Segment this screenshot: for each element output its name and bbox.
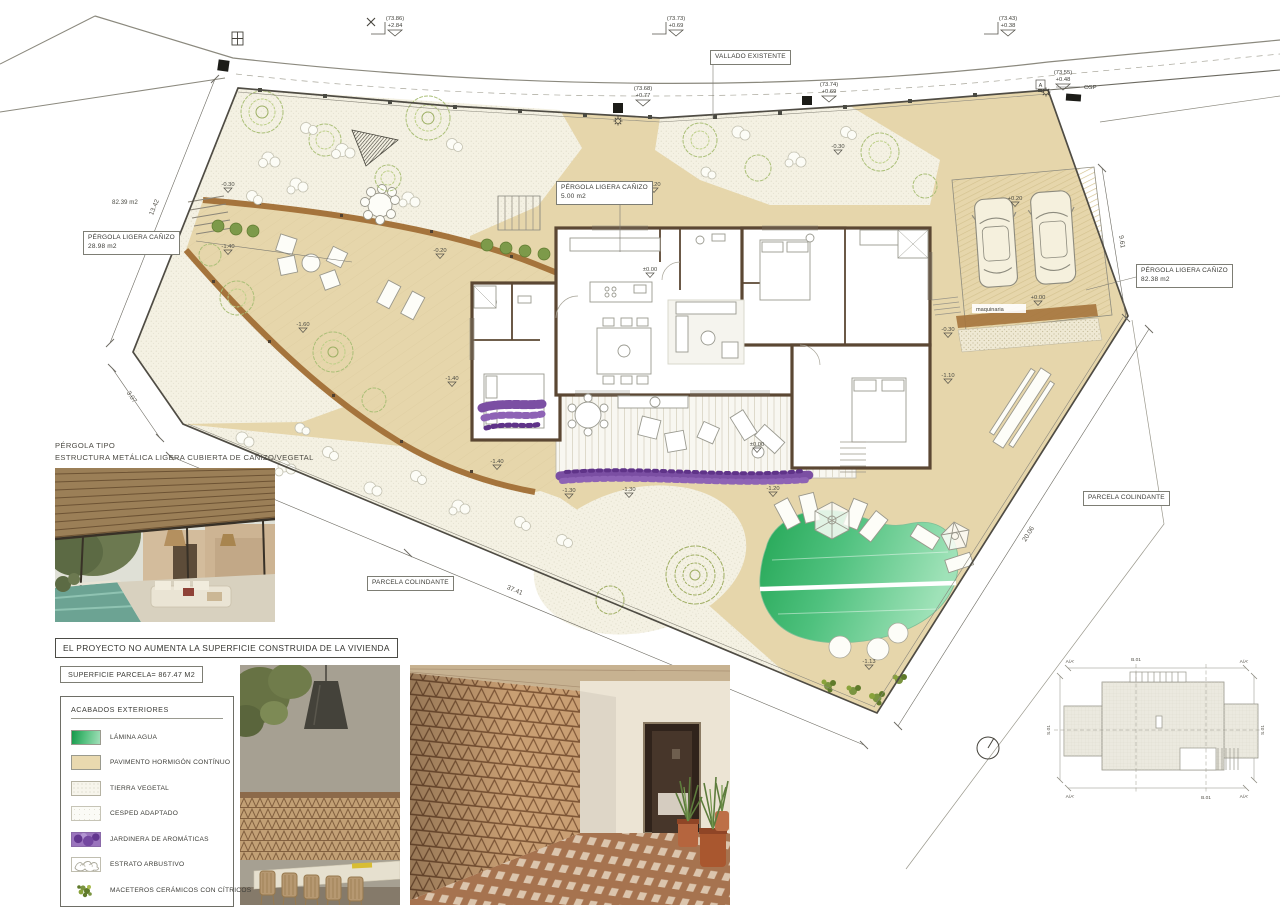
utility-box-icon: [217, 59, 229, 71]
legend-item-label: TIERRA VEGETAL: [110, 785, 169, 792]
photo-courtyard-art: [240, 665, 400, 905]
benchmark-ref: (73.43): [999, 16, 1017, 22]
pergola-note-desc: ESTRUCTURA METÁLICA LIGERA CUBIERTA DE C…: [55, 453, 314, 462]
shrub-swatch-icon: [71, 857, 101, 872]
label-line: 5.00 m2: [561, 193, 648, 202]
pavement-swatch-icon: [71, 755, 101, 770]
spot-level: +0.00: [1031, 295, 1046, 301]
spot-level: -1.20: [766, 486, 779, 492]
dim-13-42: 13.42: [148, 198, 161, 216]
dim-37-41: 37.41: [506, 584, 524, 597]
keyplan-axis-label: B.01: [1201, 795, 1211, 801]
legend-item-pavimento: PAVIMENTO HORMIGÓN CONTÍNUO: [71, 755, 223, 770]
legend-item-cesped: CESPED ADAPTADO: [71, 806, 223, 821]
legend-item-tierra-vegetal: TIERRA VEGETAL: [71, 781, 223, 796]
cgp-label: CGP: [1084, 85, 1097, 91]
benchmark-val: +0.69: [822, 89, 837, 95]
benchmark-ref: (73.74): [820, 82, 838, 88]
spot-level: +0.20: [1008, 196, 1023, 202]
label-vallado-existente: VALLADO EXISTENTE: [710, 50, 791, 65]
label-line: PÉRGOLA LIGERA CAÑIZO: [1141, 267, 1228, 276]
label-pergola-5m2: PÉRGOLA LIGERA CAÑIZO 5.00 m2: [556, 181, 653, 205]
spot-level: -1.40: [490, 459, 503, 465]
label-line: PÉRGOLA LIGERA CAÑIZO: [561, 184, 648, 193]
label-parcela-colindante-right: PARCELA COLINDANTE: [1083, 491, 1170, 506]
utility-box-icon: [802, 96, 812, 105]
benchmark-val: +0.69: [669, 23, 684, 29]
benchmark-val: +0.38: [1001, 23, 1016, 29]
legend-item-label: JARDINERA DE AROMÁTICAS: [110, 836, 209, 843]
legend-item-label: MACETEROS CERÁMICOS CON CÍTRICOS: [110, 887, 251, 894]
pergola-note-title: PÉRGOLA TIPO: [55, 441, 115, 450]
grass-swatch-icon: [71, 806, 101, 821]
spot-level: -1.13: [862, 659, 875, 665]
water-swatch-icon: [71, 730, 101, 745]
aromatics-swatch-icon: [71, 832, 101, 847]
keyplan-section-label: A/A': [1240, 659, 1249, 665]
legend-item-lamina-agua: LÁMINA AGUA: [71, 730, 223, 745]
keyplan-section-label: S.01: [1260, 725, 1266, 735]
benchmark-ref: (73.73): [667, 16, 685, 22]
manhole-icon: [232, 32, 243, 45]
spot-level: ±0.00: [750, 442, 764, 448]
legend-item-maceteros: MACETEROS CERÁMICOS CON CÍTRICOS: [71, 883, 223, 898]
spot-level: -0.30: [941, 327, 954, 333]
benchmark-ref: (73.86): [386, 16, 404, 22]
label-line: 82.38 m2: [1141, 276, 1228, 285]
dim-9-61: 9.61: [1117, 235, 1126, 249]
spot-level: -1.30: [562, 488, 575, 494]
drawing-sheet: 13.42 3.07 37.41 20.06 9.61 (73.86) +2.8…: [0, 0, 1280, 907]
spot-level: -0.30: [221, 182, 234, 188]
spot-level: ±0.00: [643, 267, 657, 273]
spot-level: -1.10: [941, 373, 954, 379]
benchmark-val: +0.48: [1056, 77, 1071, 83]
citrus-swatch-icon: [71, 883, 101, 898]
earth-swatch-icon: [71, 781, 101, 796]
keyplan-section-label: A/A': [1066, 659, 1075, 665]
legend-panel: ACABADOS EXTERIORES LÁMINA AGUA PAVIMENT…: [60, 696, 234, 907]
legend-item-label: ESTRATO ARBUSTIVO: [110, 861, 184, 868]
carport: [952, 167, 1112, 352]
maquinaria-label: maquinaria: [976, 307, 1005, 313]
benchmark-val: +2.84: [388, 23, 403, 29]
label-pergola-82m2: PÉRGOLA LIGERA CAÑIZO 82.38 m2: [1136, 264, 1233, 288]
label-parcela-colindante-left: PARCELA COLINDANTE: [367, 576, 454, 591]
photo-lattice-corridor: [410, 665, 730, 905]
label-line: 28.98 m2: [88, 243, 175, 252]
benchmark-ref: (73.68): [634, 86, 652, 92]
project-statement: EL PROYECTO NO AUMENTA LA SUPERFICIE CON…: [55, 638, 398, 658]
utility-box-icon: [613, 103, 623, 113]
north-indicator: [977, 737, 999, 759]
legend-title: ACABADOS EXTERIORES: [71, 705, 223, 719]
legend-item-jardinera: JARDINERA DE AROMÁTICAS: [71, 832, 223, 847]
legend-item-estrato-arbustivo: ESTRATO ARBUSTIVO: [71, 857, 223, 872]
legend-item-label: CESPED ADAPTADO: [110, 810, 178, 817]
parcel-surface-label: SUPERFICIE PARCELA= 867.47 M2: [60, 666, 203, 683]
photo-lattice-courtyard: [240, 665, 400, 905]
spot-level: -1.40: [445, 376, 458, 382]
spot-level: -1.60: [296, 322, 309, 328]
photo-corridor-art: [410, 665, 730, 905]
box-a-label: A: [1039, 83, 1043, 89]
spot-level: -1.30: [622, 487, 635, 493]
label-pergola-28m2: PÉRGOLA LIGERA CAÑIZO 28.98 m2: [83, 231, 180, 255]
photo-pergola-art: [55, 468, 275, 622]
keyplan-section-label: S.01: [1046, 725, 1052, 735]
keyplan-section-label: A/A': [1066, 794, 1075, 800]
roof-keyplan: A/A' A/A' A/A' A/A' S.01 S.01 B.01 B.01: [1046, 657, 1266, 801]
road: [0, 16, 1280, 122]
label-line: PÉRGOLA LIGERA CAÑIZO: [88, 234, 175, 243]
legend-item-label: LÁMINA AGUA: [110, 734, 157, 741]
benchmark-val: +0.77: [636, 93, 651, 99]
legend-item-label: PAVIMENTO HORMIGÓN CONTÍNUO: [110, 759, 230, 766]
benchmark-ref: (73.55): [1054, 70, 1072, 76]
spot-level: -0.30: [831, 144, 844, 150]
keyplan-section-label: A/A': [1240, 794, 1249, 800]
keyplan-axis-label: B.01: [1131, 657, 1141, 663]
spot-level: -0.20: [433, 248, 446, 254]
area-82-39-label: 82.39 m2: [112, 199, 138, 206]
utility-box-icon: [1066, 94, 1081, 102]
photo-pergola-reference: [55, 468, 275, 622]
